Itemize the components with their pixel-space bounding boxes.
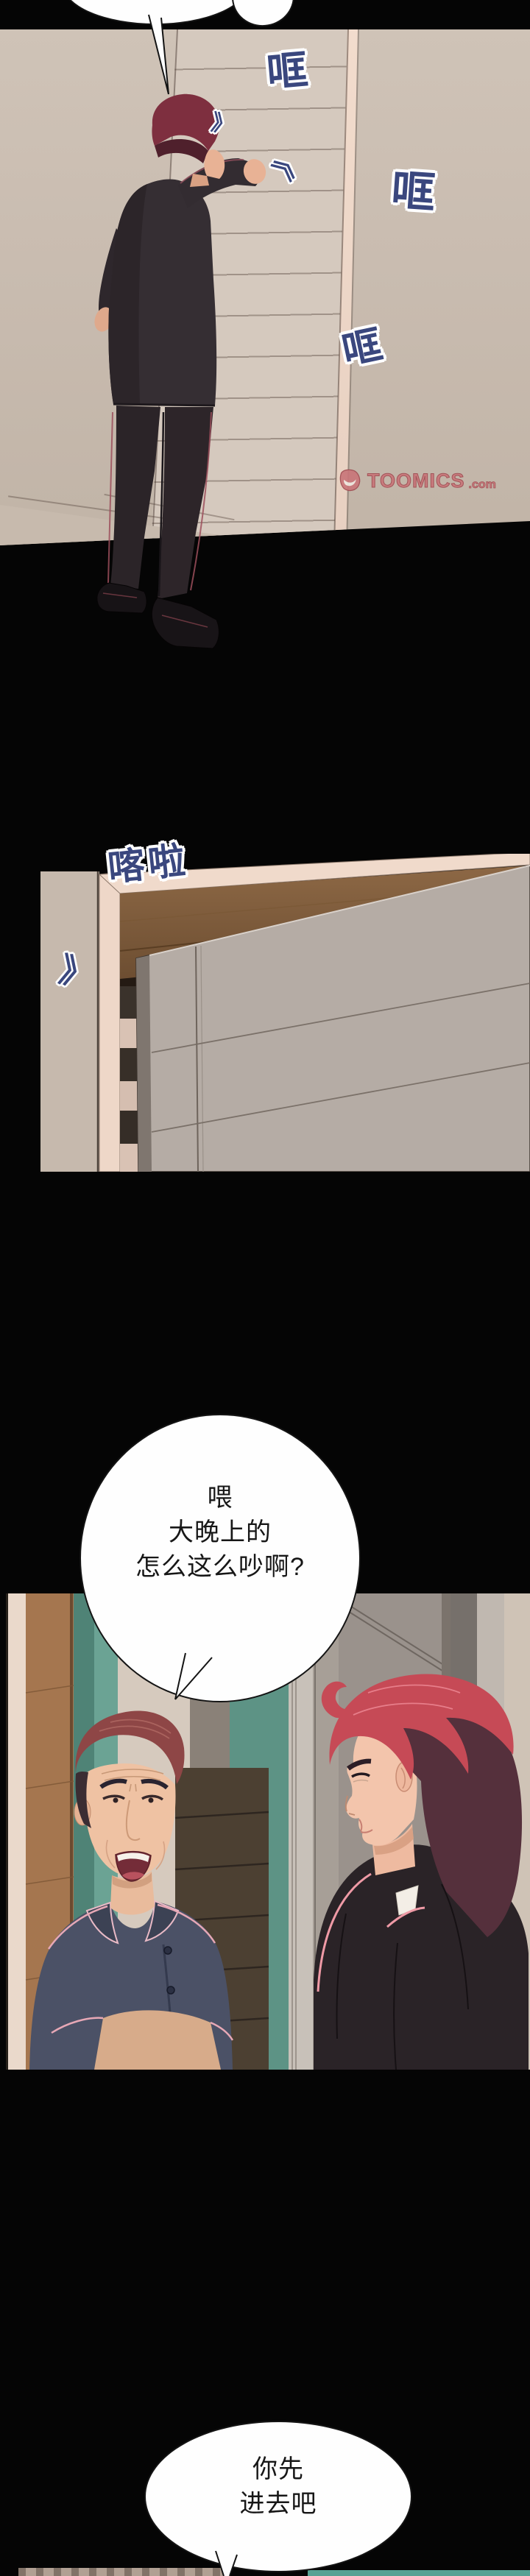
shoe-right	[152, 598, 219, 648]
sfx-knock-2: 哐	[389, 155, 438, 222]
button	[167, 1986, 174, 1994]
dialogue-line: 进去吧	[144, 2487, 412, 2522]
forearm	[94, 2010, 221, 2070]
doorway-scene	[40, 854, 530, 1172]
suited-man-figure	[0, 29, 530, 655]
watermark-domain-text: .com	[469, 478, 496, 493]
speech-bubble-complaint-tail	[0, 1641, 530, 1708]
pupil	[113, 1798, 119, 1803]
door-edge	[136, 955, 152, 1172]
shoe-left	[97, 583, 146, 613]
wall-strip	[40, 871, 99, 1172]
speech-bubble-go-in-tail	[0, 2543, 530, 2576]
dialogue-line: 喂	[77, 1481, 364, 1515]
door-frame-side	[99, 872, 120, 1172]
speech-bubble-top-tail	[0, 0, 530, 103]
comic-page: 哐 哐 哐 》 》 TOOMICS .com	[0, 0, 530, 2576]
pupil	[149, 1798, 154, 1803]
trouser-right	[158, 407, 213, 599]
suited-man	[91, 94, 269, 648]
watermark-brand-text: TOOMICS	[367, 470, 465, 492]
go-in-dialogue: 你先 进去吧	[144, 2452, 412, 2522]
panel-door-opening	[0, 854, 530, 1172]
dialogue-line: 你先	[144, 2452, 412, 2487]
trouser-left	[110, 406, 160, 589]
dialogue-line: 大晚上的	[77, 1515, 364, 1550]
face-profile	[204, 149, 225, 179]
hair-dark-side	[155, 139, 208, 163]
jacket-hem-line	[113, 404, 215, 406]
dialogue-line: 怎么这么吵啊?	[77, 1550, 364, 1585]
complaint-dialogue: 喂 大晚上的 怎么这么吵啊?	[77, 1481, 364, 1585]
sfx-door-open: 喀啦	[105, 830, 191, 891]
button	[164, 1947, 172, 1954]
toomics-watermark: TOOMICS .com	[339, 468, 496, 493]
toomics-logo-icon	[337, 467, 365, 495]
